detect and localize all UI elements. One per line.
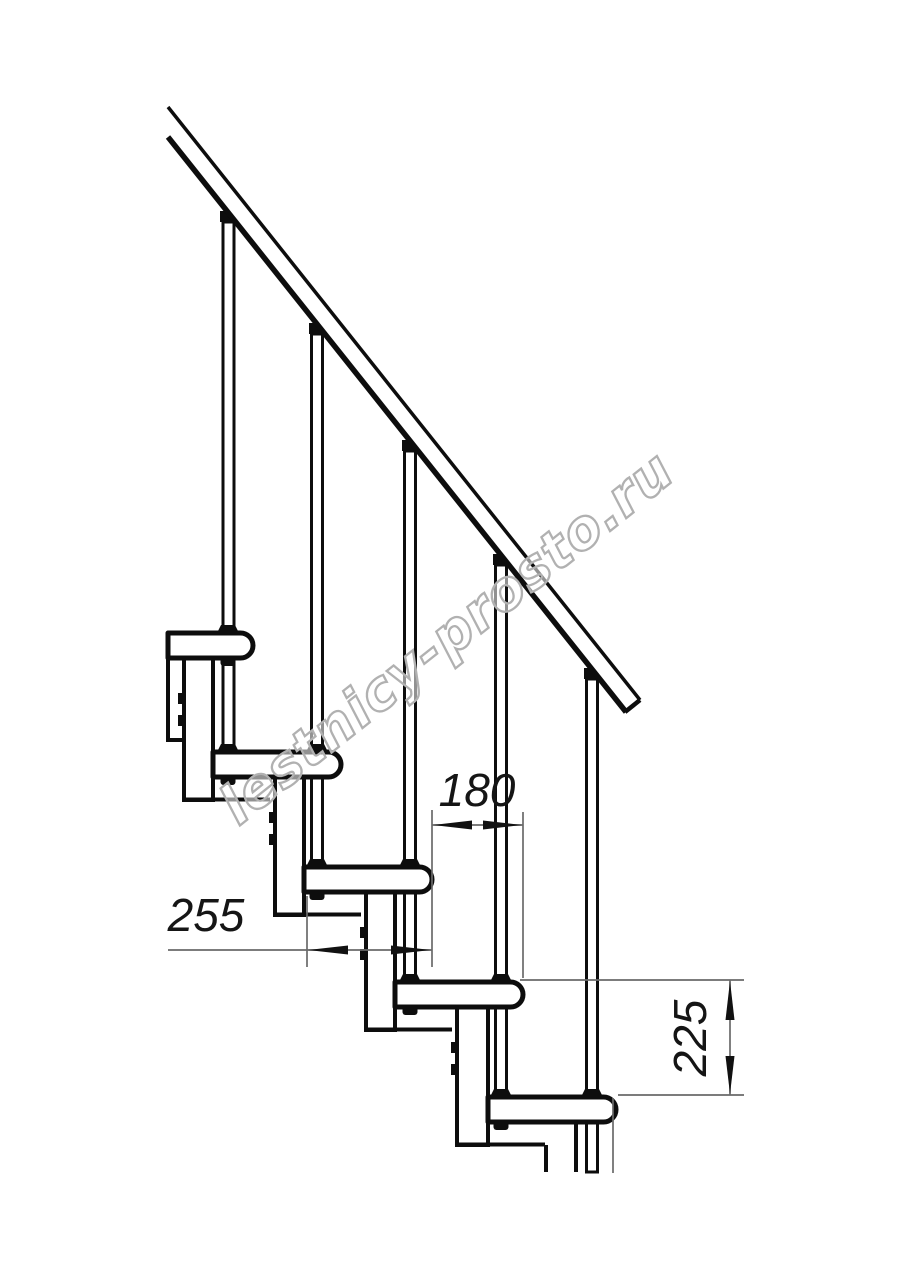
- nut: [403, 1007, 418, 1015]
- flange: [399, 974, 421, 982]
- flange: [217, 744, 239, 752]
- tread-3: [304, 867, 432, 892]
- column-1: [184, 657, 213, 800]
- baluster-2-tube: [312, 334, 323, 867]
- tread-1: [168, 633, 253, 658]
- bolt: [451, 1042, 458, 1053]
- dimension-label-riser-height: 225: [664, 999, 716, 1077]
- flange: [581, 1089, 603, 1097]
- bolt: [178, 715, 185, 726]
- flange: [217, 625, 239, 633]
- dimension-label-tread-depth: 255: [167, 889, 245, 941]
- dimension-label-step-run: 180: [439, 764, 516, 816]
- column-4: [457, 1006, 488, 1145]
- dimension-180: 180: [432, 764, 523, 978]
- drawing-page: 180 255 225 lestnicy-prosto.ru: [0, 0, 914, 1280]
- arrowhead-up: [726, 981, 735, 1020]
- nut: [494, 1122, 509, 1130]
- nut: [310, 892, 325, 900]
- bolt: [451, 1064, 458, 1075]
- nut: [221, 658, 236, 666]
- tread-4: [395, 982, 523, 1007]
- arrowhead-left: [433, 821, 472, 830]
- baluster-1-tube: [223, 222, 234, 752]
- bolt: [178, 693, 185, 704]
- baluster-3-tube: [405, 451, 416, 982]
- flange: [490, 974, 512, 982]
- arrowhead-left: [308, 946, 348, 955]
- tread-5: [488, 1097, 616, 1122]
- flange: [490, 1089, 512, 1097]
- column-3: [366, 891, 395, 1030]
- flange: [399, 859, 421, 867]
- bolt: [360, 927, 367, 938]
- bolt: [269, 834, 276, 845]
- handrail-bottom-edge: [168, 137, 626, 712]
- staircase-technical-drawing: 180 255 225 lestnicy-prosto.ru: [0, 0, 914, 1280]
- arrowhead-down: [726, 1056, 735, 1094]
- baluster-4-tube: [496, 565, 507, 1097]
- flange: [306, 859, 328, 867]
- dimension-225: 225: [520, 980, 744, 1173]
